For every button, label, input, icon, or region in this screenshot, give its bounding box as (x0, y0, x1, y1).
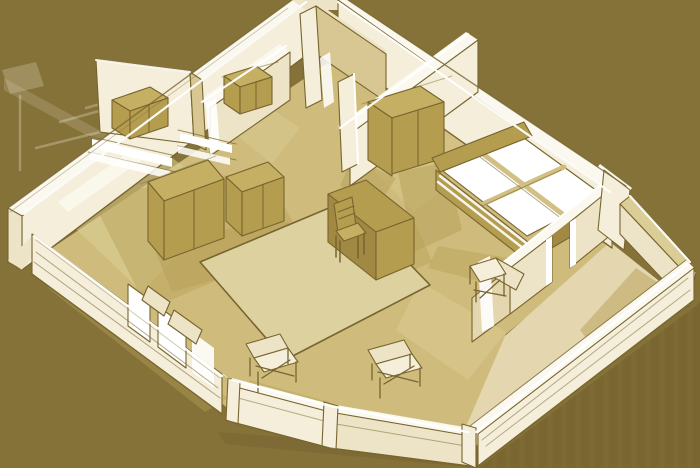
balcony-door-jamb-1 (570, 218, 576, 268)
floor-plan-illustration (0, 0, 700, 468)
balcony-door-jamb-2 (546, 236, 552, 286)
chamfer-pillar-2 (322, 402, 338, 450)
floor-plan-canvas (0, 0, 700, 468)
chamfer-pillar-1 (226, 378, 240, 424)
